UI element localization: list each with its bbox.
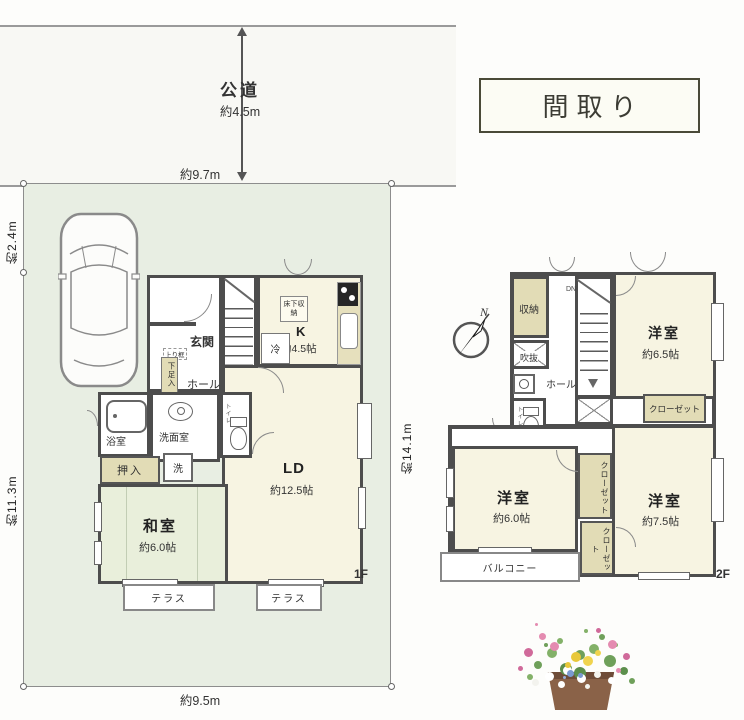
stair-treads: [580, 305, 608, 379]
label-washitsu-size: 約6.0帖: [139, 539, 176, 555]
bay-window: [357, 403, 372, 459]
washer-box: 洗: [163, 453, 193, 482]
window: [446, 506, 454, 532]
room-washitsu: 和室 約6.0帖: [98, 484, 228, 584]
basin-2f-icon: [513, 374, 535, 394]
wall-segment: [150, 322, 196, 326]
shoe-cabinet-box: 下足入: [161, 357, 178, 393]
floor1-label: 1F: [354, 567, 368, 581]
title-label: 間取り: [534, 87, 644, 124]
dim-site-left-upper: 約2.4m: [3, 198, 20, 264]
door-arc-icon: [630, 252, 648, 272]
road-width-label: 約4.5m: [202, 101, 278, 120]
door-arc-icon: [562, 257, 575, 272]
label-ld-size: 約12.5帖: [270, 482, 313, 498]
road-name-label: 公道: [202, 76, 278, 101]
dim-site-bottom: 約9.5m: [165, 690, 235, 709]
room-washroom: 洗面室: [150, 392, 220, 462]
stair-diagonal: [224, 278, 255, 303]
dim-site-left-lower: 約11.3m: [3, 452, 20, 526]
underfloor-storage-box: 床下収納: [280, 296, 308, 322]
label-hall-2f: ホール: [546, 376, 576, 391]
title-box: 間取り: [479, 78, 700, 133]
room-storage-2f: 収納: [511, 276, 549, 338]
bathtub-icon: [106, 400, 147, 433]
stairs-landing-box: [575, 396, 613, 425]
bay-window: [711, 303, 724, 361]
label-bedroom2-name: 洋室: [497, 487, 531, 508]
oshiire-box: 押入: [100, 456, 160, 484]
label-ld-name: LD: [283, 460, 305, 477]
label-kitchen-name: K: [296, 324, 305, 339]
corner-marker: [20, 683, 27, 690]
toilet-tank-icon: [230, 417, 247, 427]
pink-flowers: [550, 642, 559, 651]
room-bedroom3: 洋室 約7.5帖: [612, 425, 716, 577]
label-storage-2f: 収納: [519, 301, 539, 316]
blue-flowers: [567, 670, 574, 677]
label-bedroom3-name: 洋室: [648, 490, 682, 511]
toilet-tank-icon: [523, 407, 539, 416]
basin-icon: [168, 402, 193, 421]
closet-1: クローゼット: [643, 394, 706, 423]
car-top-view: [58, 210, 140, 390]
label-hall-1f: ホール: [187, 376, 220, 392]
window: [358, 487, 366, 529]
corner-marker: [388, 180, 395, 187]
stair-down-arrow-icon: [588, 379, 598, 388]
closet-3: クローゼット: [580, 521, 614, 575]
yellow-flowers: [571, 652, 581, 662]
label-bath: 浴室: [106, 433, 126, 448]
corner-marker: [20, 180, 27, 187]
arrow-down-icon: [237, 172, 247, 181]
corner-marker: [388, 683, 395, 690]
floorplan-page: 公道 約4.5m 約9.7m 約2.4m 約11.3m 約14.1m 約9.5m…: [0, 0, 744, 720]
entrance-door-arc-icon: [184, 294, 212, 322]
window: [94, 502, 102, 532]
label-bedroom3-size: 約7.5帖: [642, 513, 679, 529]
label-bedroom2-size: 約6.0帖: [493, 510, 530, 526]
arrow-up-icon: [237, 27, 247, 36]
dim-site-right: 約14.1m: [398, 400, 415, 474]
window: [94, 541, 102, 565]
stairs-2f: DN: [575, 276, 613, 398]
void-box: 吹抜: [511, 340, 549, 369]
compass-icon: N: [448, 303, 500, 363]
label-bedroom1-size: 約6.5帖: [642, 346, 679, 362]
label-void: 吹抜: [520, 351, 538, 364]
frontage-label: 約9.7m: [168, 164, 232, 183]
flower-planter: [505, 610, 655, 715]
label-washroom: 洗面室: [159, 429, 189, 444]
door-arc-icon: [648, 252, 666, 272]
room-kitchen: 床下収納 K 約4.5帖 冷: [257, 275, 363, 367]
fridge-box: 冷: [261, 333, 290, 364]
balcony: バルコニー: [440, 552, 580, 582]
label-stairs-dn: DN: [566, 286, 576, 293]
stair-treads: [225, 300, 253, 366]
toilet-bowl-icon: [230, 427, 247, 450]
room-entrance-hall: 玄関 上り框 下足入 ホール: [147, 275, 222, 392]
door-arc-icon: [549, 257, 562, 272]
room-bath: 浴室: [98, 392, 150, 457]
corner-marker: [20, 269, 27, 276]
planter-pot: [545, 672, 617, 710]
terrace-1: テラス: [123, 584, 215, 611]
sink-icon: [340, 313, 358, 349]
floor2-label: 2F: [716, 567, 730, 581]
window: [446, 468, 454, 498]
label-washitsu-name: 和室: [143, 515, 177, 536]
stair-diagonal: [577, 279, 611, 303]
stove-icon: [338, 283, 358, 306]
bay-window: [711, 458, 724, 522]
label-entrance: 玄関: [190, 333, 214, 350]
room-toilet-1f: トイレ: [220, 392, 252, 458]
terrace-2: テラス: [256, 584, 322, 611]
window: [638, 572, 690, 580]
label-bedroom1-name: 洋室: [648, 323, 680, 343]
closet-2: クローゼット: [578, 453, 612, 519]
